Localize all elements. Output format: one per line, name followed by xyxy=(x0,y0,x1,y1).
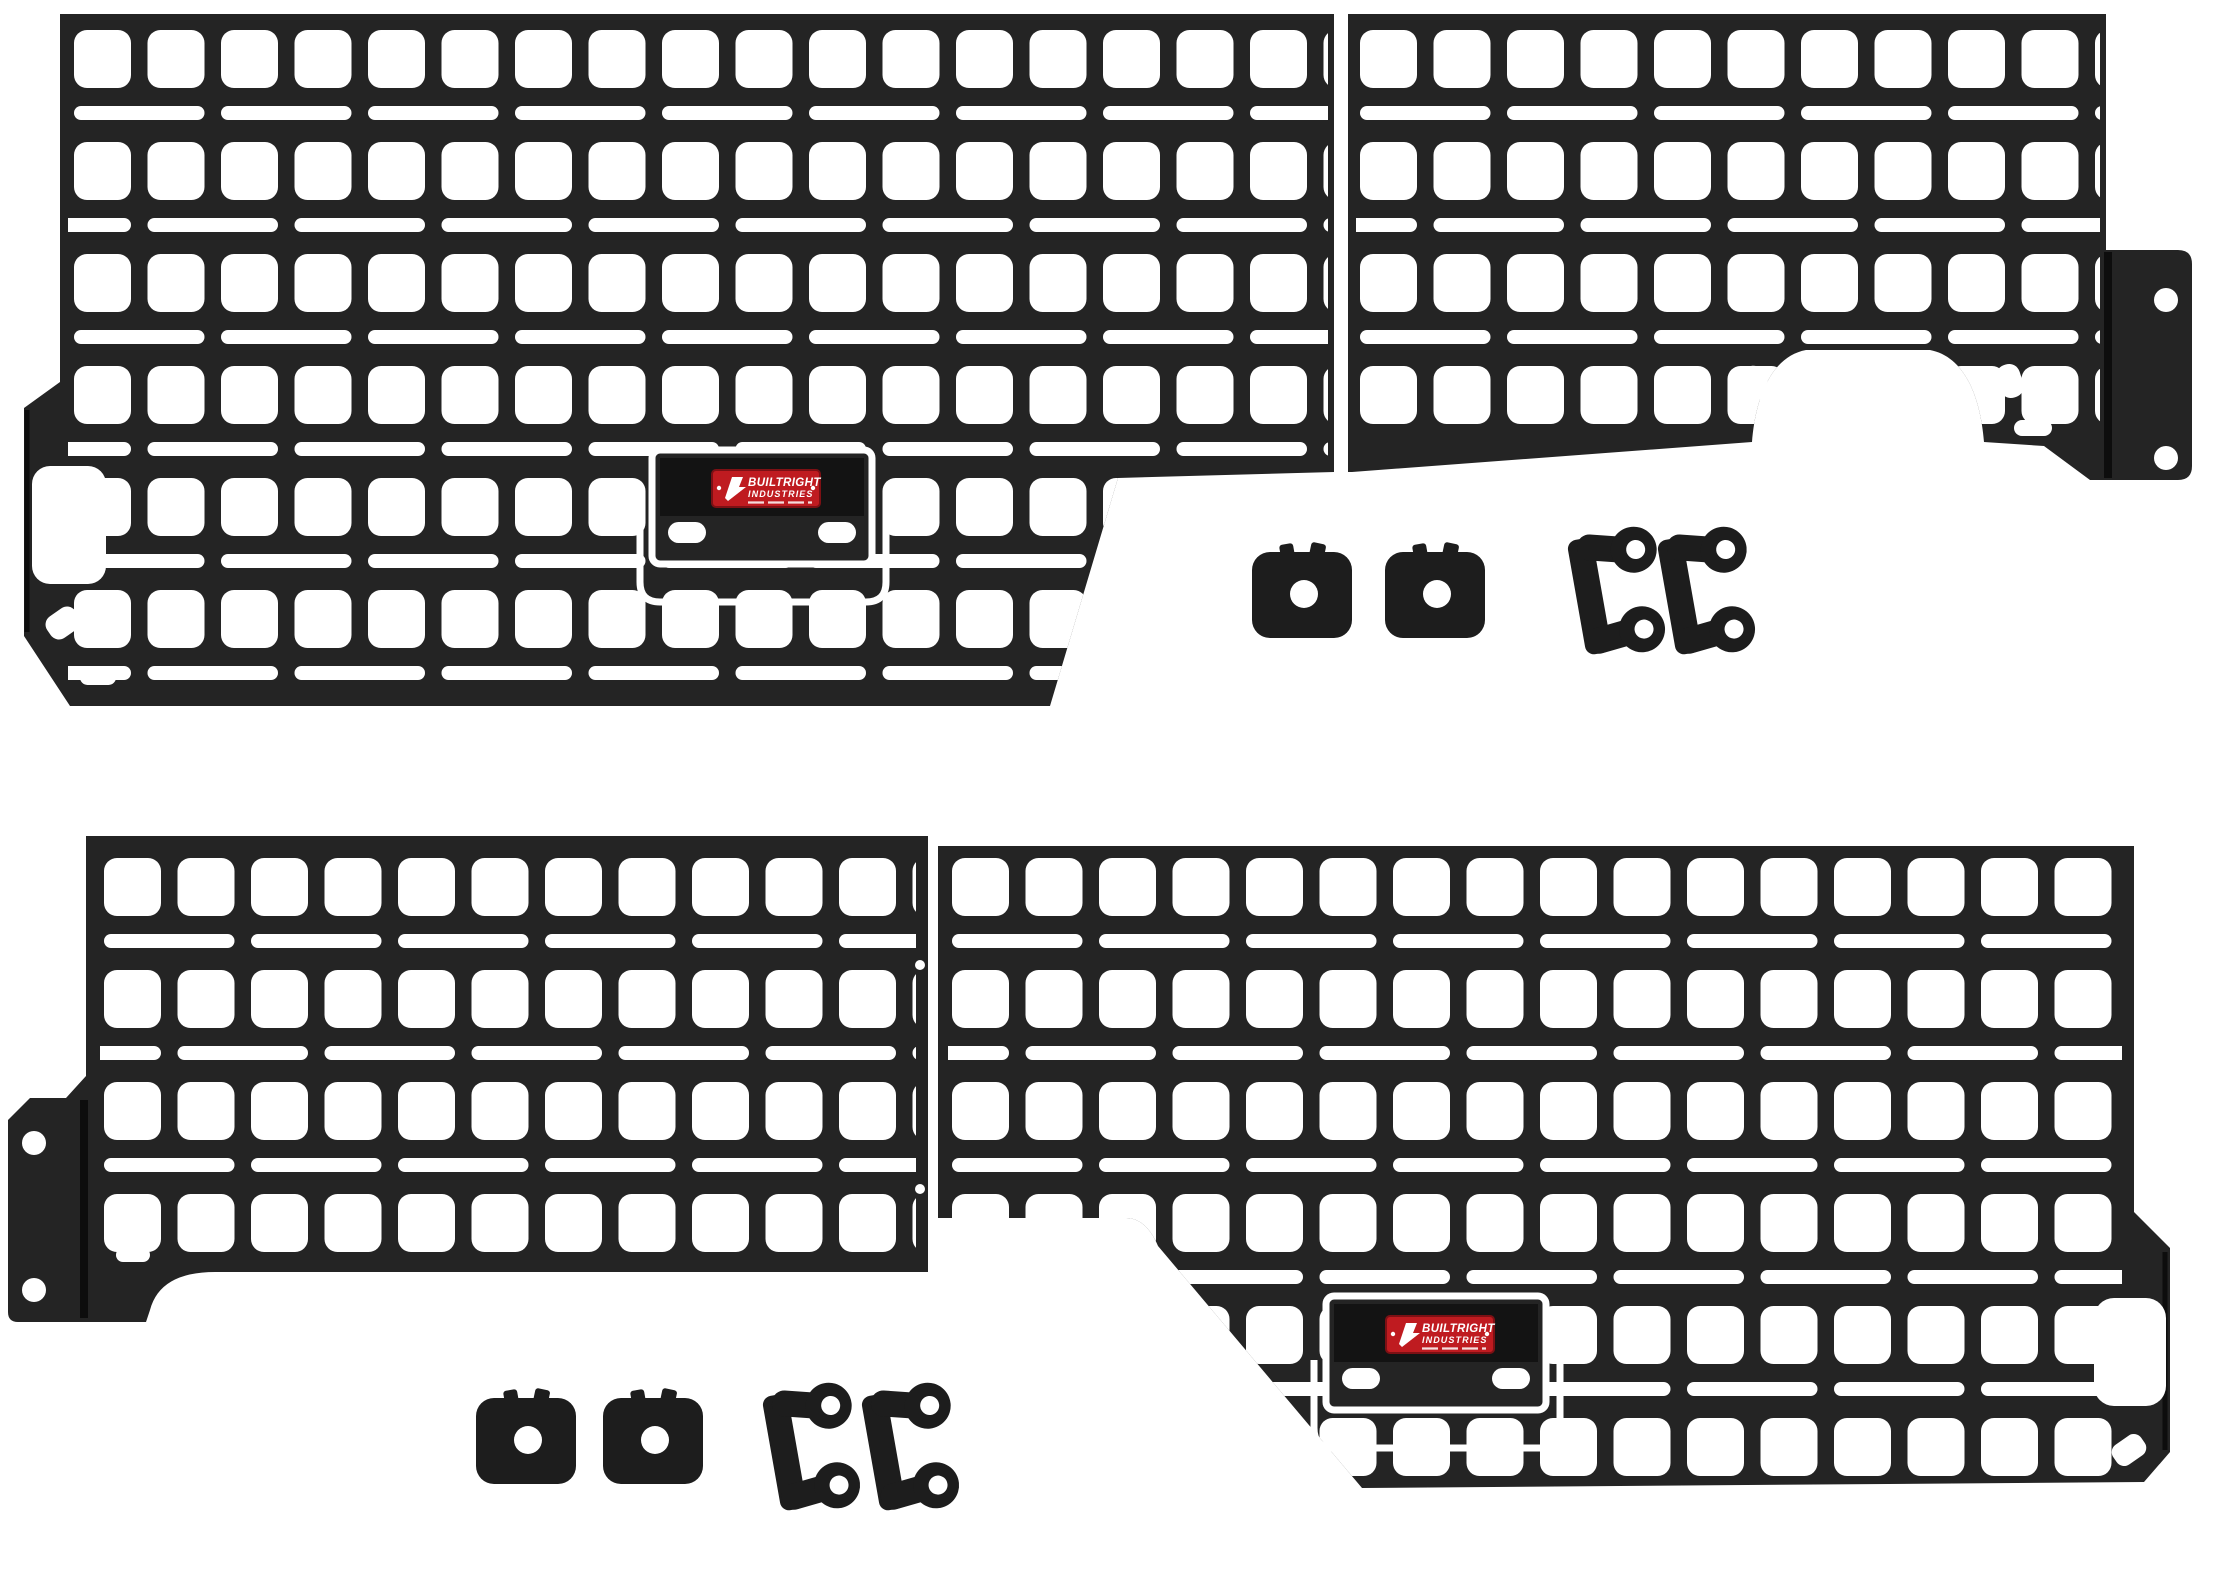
small-slot-cutout xyxy=(80,670,116,685)
molle-grid xyxy=(68,24,1328,694)
molle-grid xyxy=(100,852,916,1262)
rivet-hole xyxy=(915,1184,925,1194)
grommet-clip xyxy=(476,1388,576,1484)
rivet-hole xyxy=(1361,332,1371,342)
screw-hole xyxy=(2154,446,2178,470)
mounting-bracket xyxy=(1656,524,1758,659)
grommet-clip xyxy=(603,1388,703,1484)
mounting-bracket xyxy=(1566,524,1668,659)
molle-grid xyxy=(1356,22,2100,436)
top-panel-set xyxy=(24,14,2192,706)
screw-hole xyxy=(22,1278,46,1302)
mounting-bracket xyxy=(860,1380,962,1515)
rivet-hole xyxy=(1361,108,1371,118)
hardware-kit-top xyxy=(1252,524,1757,659)
grommet-clip xyxy=(1252,542,1352,638)
grommet-clip xyxy=(1385,542,1485,638)
tab-slot-cutout xyxy=(32,466,106,584)
small-slot-cutout xyxy=(2014,420,2052,436)
bottom-panel-set xyxy=(8,836,2170,1515)
product-photo-molle-panels: BUILTRIGHT INDUSTRIES xyxy=(0,0,2217,1588)
screw-hole xyxy=(22,1131,46,1155)
mounting-bracket xyxy=(761,1380,863,1515)
screw-hole xyxy=(2154,288,2178,312)
hardware-kit-bottom xyxy=(476,1380,961,1515)
small-slot-cutout xyxy=(116,1248,150,1262)
rivet-hole xyxy=(915,960,925,970)
tab-slot-cutout xyxy=(2094,1298,2166,1406)
